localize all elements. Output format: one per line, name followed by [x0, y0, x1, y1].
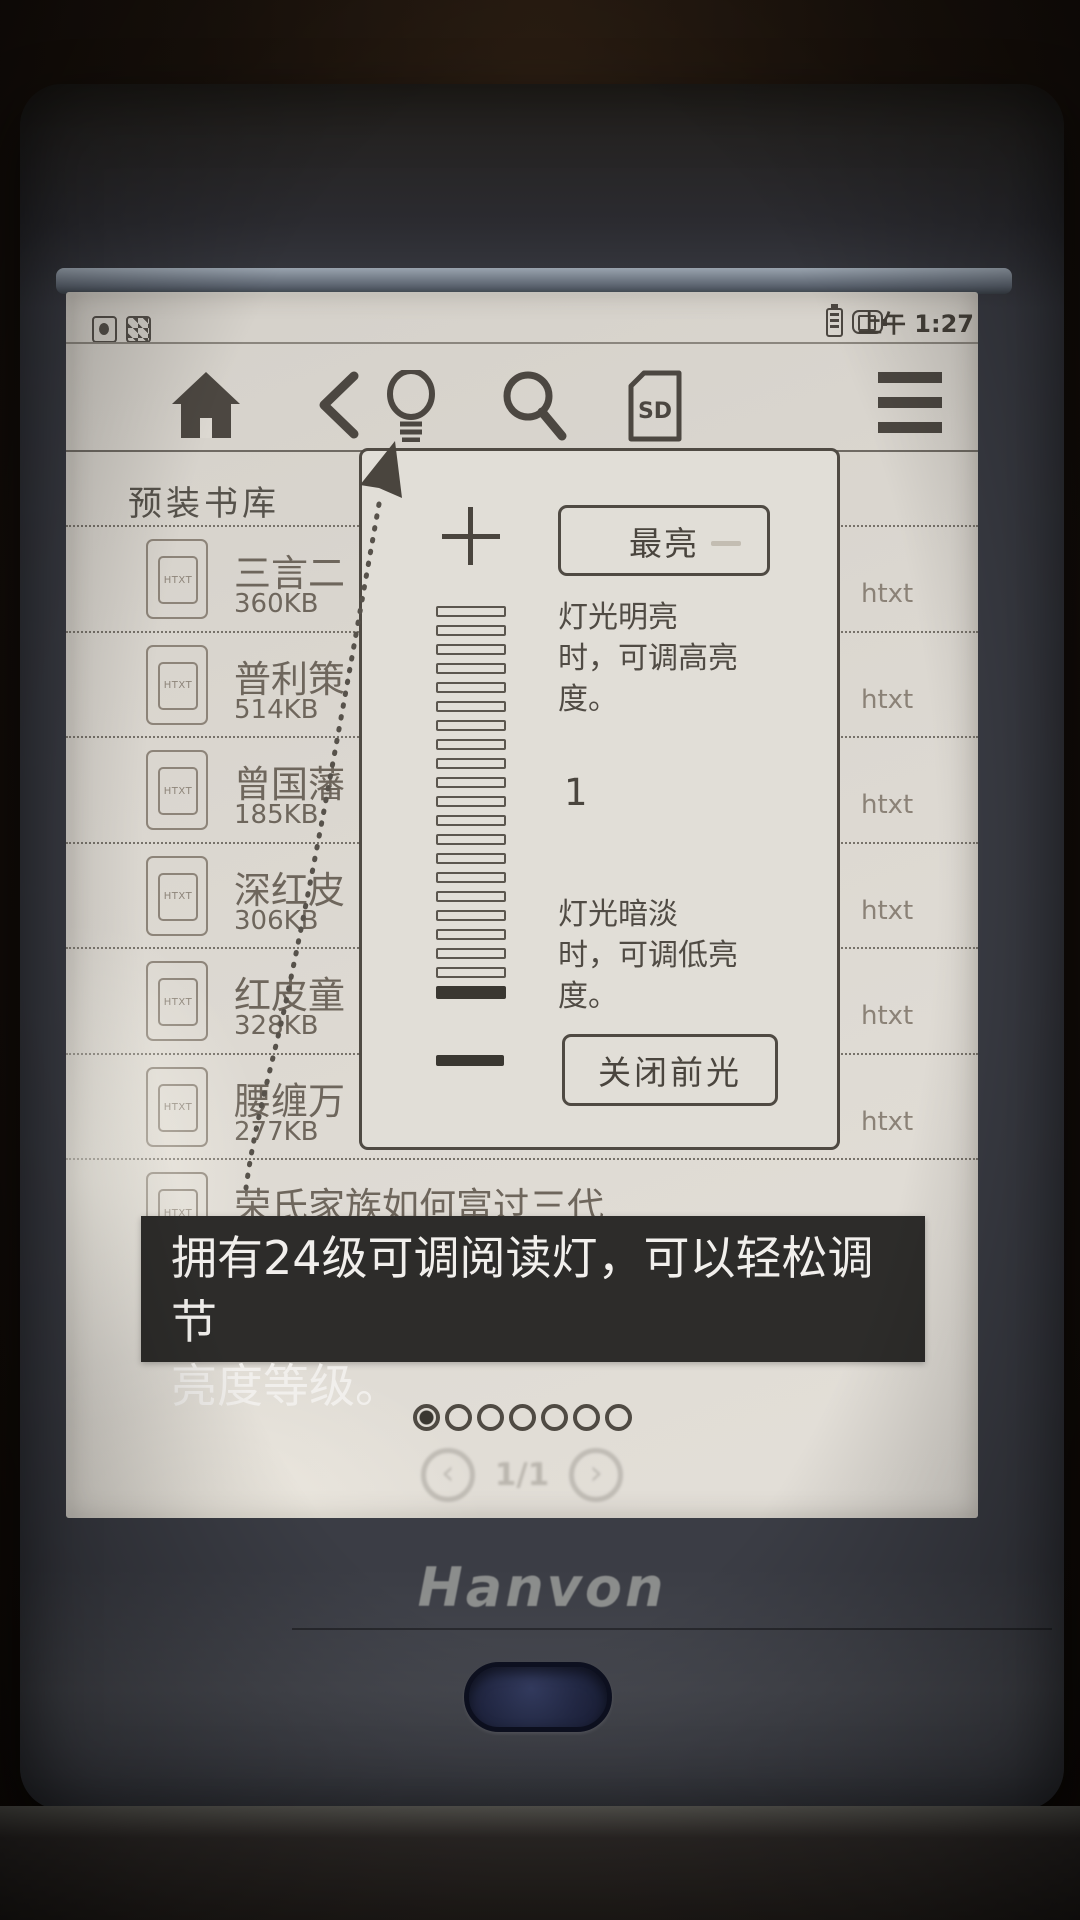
brightness-level-bar[interactable]: [436, 625, 506, 636]
minus-icon[interactable]: [436, 1055, 504, 1066]
brightness-level-bar[interactable]: [436, 815, 506, 826]
brightness-level-value: 1: [564, 771, 588, 814]
brightness-level-bar[interactable]: [436, 853, 506, 864]
home-icon: [170, 370, 242, 440]
brightness-level-bar[interactable]: [436, 682, 506, 693]
brand-logo: Hanvon: [386, 1556, 698, 1619]
book-format: htxt: [861, 579, 913, 609]
brightness-level-bar[interactable]: [436, 739, 506, 750]
brightness-level-bar[interactable]: [436, 663, 506, 674]
book-format-icon-label: HTXT: [158, 873, 198, 921]
book-size: 514KB: [234, 695, 319, 725]
book-cover-icon: HTXT: [146, 961, 208, 1041]
brightness-popup: 最亮 灯光明亮 时，可调高亮 度。 1 灯光暗淡 时，可调低亮 度。 关闭前光: [359, 448, 840, 1150]
book-format-icon-label: HTXT: [158, 556, 198, 604]
storage-icon: [92, 316, 117, 343]
page-indicator: 1/1: [495, 1457, 549, 1493]
brightness-level-bar[interactable]: [436, 701, 506, 712]
brightness-slider[interactable]: [436, 606, 506, 999]
brightness-level-bar[interactable]: [436, 929, 506, 940]
book-size: 277KB: [234, 1117, 319, 1147]
photo-of-ereader: 上午 1:27: [0, 0, 1080, 1920]
table-surface: [0, 1806, 1080, 1920]
status-bar: 上午 1:27: [66, 292, 978, 344]
bezel-seam: [292, 1628, 1052, 1630]
brightness-level-bar[interactable]: [436, 967, 506, 978]
screen-top-rim: [56, 268, 1012, 294]
brightness-level-bar[interactable]: [436, 606, 506, 617]
frontlight-button[interactable]: [376, 370, 446, 440]
book-format: htxt: [861, 896, 913, 926]
brightness-level-bar[interactable]: [436, 948, 506, 959]
sd-card-status-icon: [126, 316, 151, 343]
book-cover-icon: HTXT: [146, 539, 208, 619]
back-icon: [316, 370, 360, 440]
book-cover-icon: HTXT: [146, 856, 208, 936]
menu-icon: [878, 370, 942, 436]
book-format-icon-label: HTXT: [158, 767, 198, 815]
plus-icon[interactable]: [468, 507, 473, 565]
max-brightness-label: 最亮: [629, 517, 699, 565]
brightness-level-bar[interactable]: [436, 910, 506, 921]
frontlight-off-button[interactable]: 关闭前光: [562, 1034, 778, 1106]
book-format: htxt: [861, 790, 913, 820]
search-icon: [498, 370, 568, 442]
menu-button[interactable]: [878, 370, 942, 440]
brightness-level-bar[interactable]: [436, 720, 506, 731]
caption-banner: 拥有24级可调阅读灯，可以轻松调节 亮度等级。: [141, 1216, 925, 1362]
status-divider: [66, 342, 978, 344]
book-size: 306KB: [234, 906, 319, 936]
book-format-icon-label: HTXT: [158, 662, 198, 710]
caption-text: 拥有24级可调阅读灯，可以轻松调节 亮度等级。: [171, 1226, 911, 1418]
book-format: htxt: [861, 685, 913, 715]
brightness-desc-high: 灯光明亮 时，可调高亮 度。: [558, 597, 808, 720]
brightness-desc-low: 灯光暗淡 时，可调低亮 度。: [558, 894, 808, 1017]
library-title: 预装书库: [128, 476, 280, 525]
book-format: htxt: [861, 1001, 913, 1031]
brightness-level-bar[interactable]: [436, 758, 506, 769]
eink-screen: 上午 1:27: [66, 292, 978, 1518]
brightness-level-bar[interactable]: [436, 834, 506, 845]
brightness-level-bar[interactable]: [436, 644, 506, 655]
ghost-page-nav: ‹ 1/1 ›: [66, 1440, 978, 1510]
hardware-home-button[interactable]: [464, 1662, 612, 1732]
book-size: 185KB: [234, 800, 319, 830]
book-size: 328KB: [234, 1011, 319, 1041]
home-button[interactable]: [170, 370, 242, 440]
prev-page-icon: ‹: [421, 1448, 475, 1502]
frontlight-off-label: 关闭前光: [598, 1046, 742, 1094]
brightness-level-bar[interactable]: [436, 872, 506, 883]
battery-icon: [826, 308, 843, 337]
clock-time: 上午 1:27: [854, 304, 974, 339]
back-button[interactable]: [316, 370, 360, 440]
book-format-icon-label: HTXT: [158, 978, 198, 1026]
sd-label: SD: [638, 399, 672, 424]
book-cover-icon: HTXT: [146, 645, 208, 725]
search-button[interactable]: [498, 370, 568, 440]
next-page-icon: ›: [569, 1448, 623, 1502]
brightness-level-bar[interactable]: [436, 796, 506, 807]
ghost-dash-artifact: [711, 541, 741, 546]
frontlight-icon: [376, 370, 446, 442]
book-format-icon-label: HTXT: [158, 1084, 198, 1132]
brightness-level-bar[interactable]: [436, 777, 506, 788]
brightness-level-bar[interactable]: [436, 891, 506, 902]
sd-card-icon: SD: [628, 370, 682, 442]
sd-card-button[interactable]: SD: [628, 370, 682, 440]
book-cover-icon: HTXT: [146, 1067, 208, 1147]
brightness-level-bar-active[interactable]: [436, 986, 506, 999]
book-format: htxt: [861, 1107, 913, 1137]
max-brightness-button[interactable]: 最亮: [558, 505, 770, 576]
book-cover-icon: HTXT: [146, 750, 208, 830]
book-size: 360KB: [234, 589, 319, 619]
